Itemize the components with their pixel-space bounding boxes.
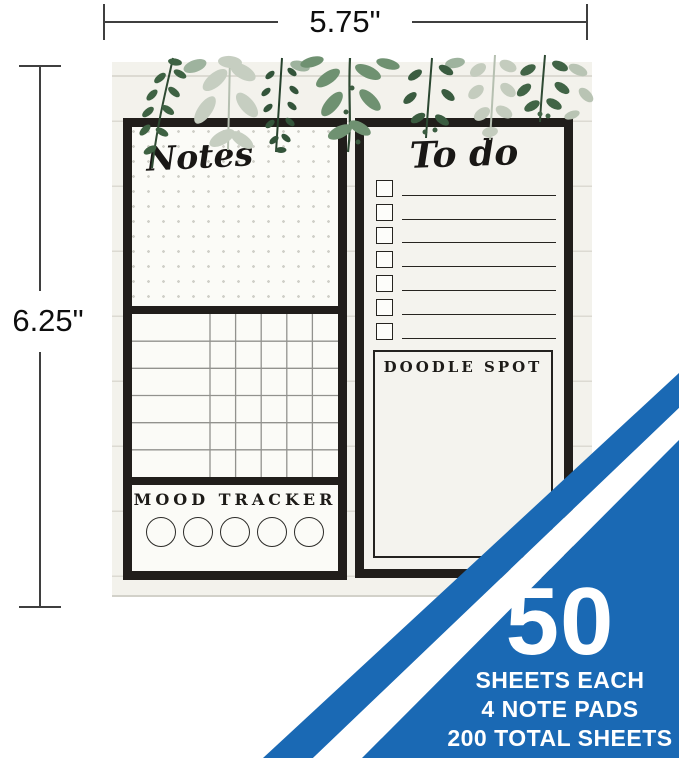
- todo-row: [364, 199, 564, 223]
- height-dimension-label: 6.25": [0, 303, 96, 339]
- height-dimension-tick-bottom: [19, 606, 61, 608]
- width-dimension-tick-left: [103, 4, 105, 40]
- todo-checkbox: [376, 227, 393, 244]
- todo-write-line: [402, 195, 556, 196]
- habit-grid-lines: [132, 314, 338, 477]
- todo-panel: To do DOODLE SPOT: [355, 118, 573, 578]
- todo-row: [364, 318, 564, 342]
- todo-checkbox: [376, 251, 393, 268]
- todo-row: [364, 270, 564, 294]
- todo-rows: [364, 175, 564, 342]
- todo-row: [364, 246, 564, 270]
- todo-write-line: [402, 242, 556, 243]
- mood-circles: [132, 517, 338, 547]
- mood-circle: [183, 517, 213, 547]
- notes-section: Notes: [132, 127, 338, 306]
- notes-title: Notes: [145, 134, 254, 179]
- todo-row: [364, 175, 564, 199]
- todo-write-line: [402, 338, 556, 339]
- todo-title: To do: [363, 130, 564, 179]
- mood-circle: [146, 517, 176, 547]
- mood-circle: [294, 517, 324, 547]
- mood-circle: [220, 517, 250, 547]
- todo-write-line: [402, 314, 556, 315]
- todo-checkbox: [376, 275, 393, 292]
- height-dimension-line-bottom: [39, 352, 41, 608]
- banner-line-2: 4 NOTE PADS: [430, 695, 679, 724]
- todo-write-line: [402, 219, 556, 220]
- banner-line-1: SHEETS EACH: [430, 666, 679, 695]
- banner-line-3: 200 TOTAL SHEETS: [430, 724, 679, 753]
- todo-checkbox: [376, 299, 393, 316]
- width-dimension-label: 5.75": [272, 4, 418, 40]
- height-dimension-tick-top: [19, 65, 61, 67]
- todo-write-line: [402, 290, 556, 291]
- doodle-spot: DOODLE SPOT: [373, 350, 553, 558]
- todo-checkbox: [376, 180, 393, 197]
- todo-checkbox: [376, 204, 393, 221]
- product-image-canvas: 5.75" 6.25" Notes: [0, 0, 679, 758]
- todo-checkbox: [376, 323, 393, 340]
- left-panel: Notes MOOD TRACKER: [123, 118, 347, 580]
- mood-tracker-section: MOOD TRACKER: [132, 477, 338, 571]
- width-dimension-line-right: [412, 21, 588, 23]
- width-dimension-tick-right: [586, 4, 588, 40]
- doodle-spot-title: DOODLE SPOT: [375, 352, 551, 376]
- todo-row: [364, 294, 564, 318]
- mood-tracker-title: MOOD TRACKER: [132, 485, 338, 509]
- mood-circle: [257, 517, 287, 547]
- width-dimension-line-left: [104, 21, 278, 23]
- height-dimension-line-top: [39, 66, 41, 291]
- todo-row: [364, 223, 564, 247]
- todo-write-line: [402, 266, 556, 267]
- banner-text-block: 50 SHEETS EACH 4 NOTE PADS 200 TOTAL SHE…: [430, 578, 679, 753]
- sheet-count-number: 50: [430, 578, 679, 666]
- habit-grid-section: [132, 306, 338, 477]
